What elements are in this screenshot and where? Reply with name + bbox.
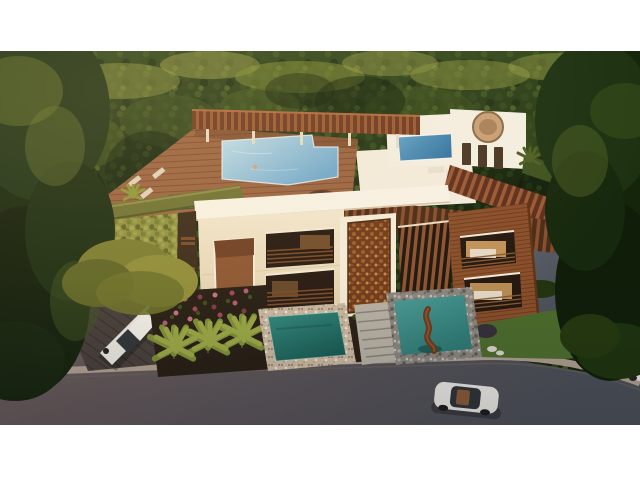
dusk-vignette xyxy=(0,51,640,425)
rendering-scene xyxy=(0,51,640,425)
rendering-canvas xyxy=(0,51,640,425)
letterbox-bottom xyxy=(0,425,640,480)
architectural-rendering: Aerial dusk 3D architectural rendering o… xyxy=(0,0,640,480)
letterbox-top xyxy=(0,0,640,51)
